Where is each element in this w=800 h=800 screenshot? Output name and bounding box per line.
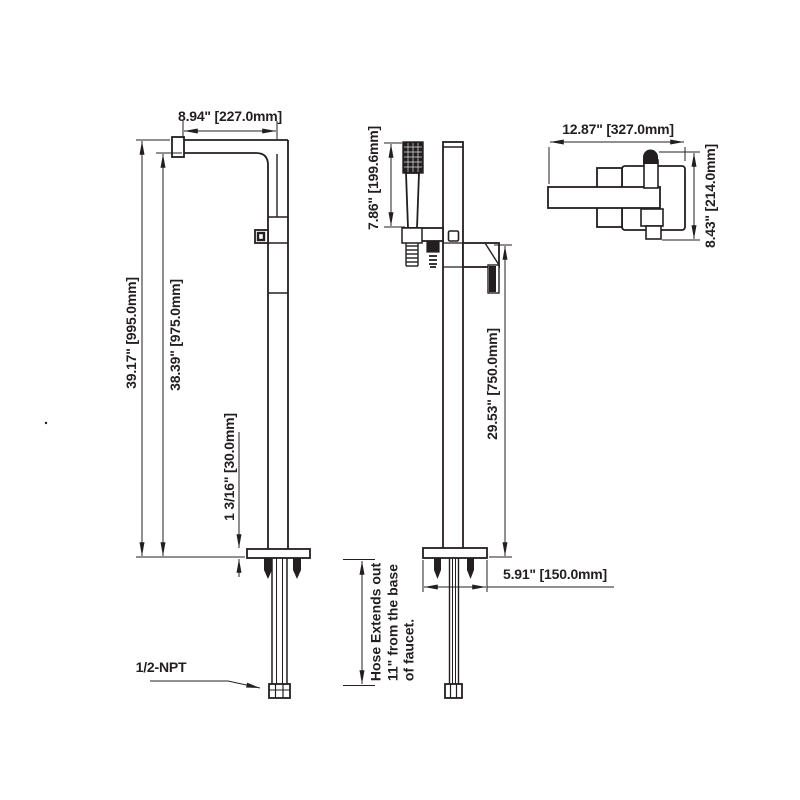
handle-shaft-top [644,160,658,188]
hose-extension-note: Hose Extends out 11" from the base of fa… [367,563,417,681]
handle-cap-top [643,150,658,165]
dim-label-spout-height: 38.39" [975.0mm] [168,279,182,391]
handshower-body [406,173,419,228]
hose-note-line-2: 11" from the base [384,563,401,681]
spout-outlet-lip [172,137,184,157]
front-view-drawing [172,137,310,698]
diverter-knob-side [427,242,439,252]
hose-note-line-1: Hose Extends out [367,563,384,681]
technical-drawing-page: 8.94" [227.0mm] 39.17" [995.0mm] 38.39" … [0,0,800,800]
front-view-dimensions [136,121,277,688]
hose-note-line-3: of faucet. [400,563,417,681]
stray-mark [45,422,47,424]
tub-spout [463,243,499,267]
npt-leader-line [150,681,260,688]
holder-block-lower [646,226,661,239]
label-inlet-thread: 1/2-NPT [136,660,187,674]
supply-hose [434,558,441,579]
dim-label-base-width: 5.91" [150.0mm] [503,567,607,581]
handshower-hose-coil [406,243,418,266]
dim-label-overall-reach: 12.87" [327.0mm] [562,122,674,136]
riser-column [443,142,463,549]
dim-label-overall-height: 39.17" [995.0mm] [124,277,138,389]
base-flange-side [423,548,487,558]
dim-label-overall-depth: 8.43" [214.0mm] [703,144,717,248]
dim-label-handshower-length: 7.86" [199.6mm] [366,126,380,230]
spout-arm-top [548,187,660,208]
supply-hose [264,558,272,579]
base-flange-front [247,549,310,558]
supply-hose [467,558,474,579]
dim-label-base-thickness: 1 3/16" [30.0mm] [222,413,236,521]
supply-hose [293,558,301,579]
handshower-clamp [402,228,422,243]
hose-end-fitting [445,684,462,698]
dim-label-outlet-height: 29.53" [750.0mm] [485,328,499,440]
npt-fitting [269,684,290,698]
holder-block-upper [641,209,663,226]
top-view-drawing [548,150,685,240]
dim-label-spout-reach: 8.94" [227.0mm] [178,109,282,123]
lever-handle [489,266,496,292]
